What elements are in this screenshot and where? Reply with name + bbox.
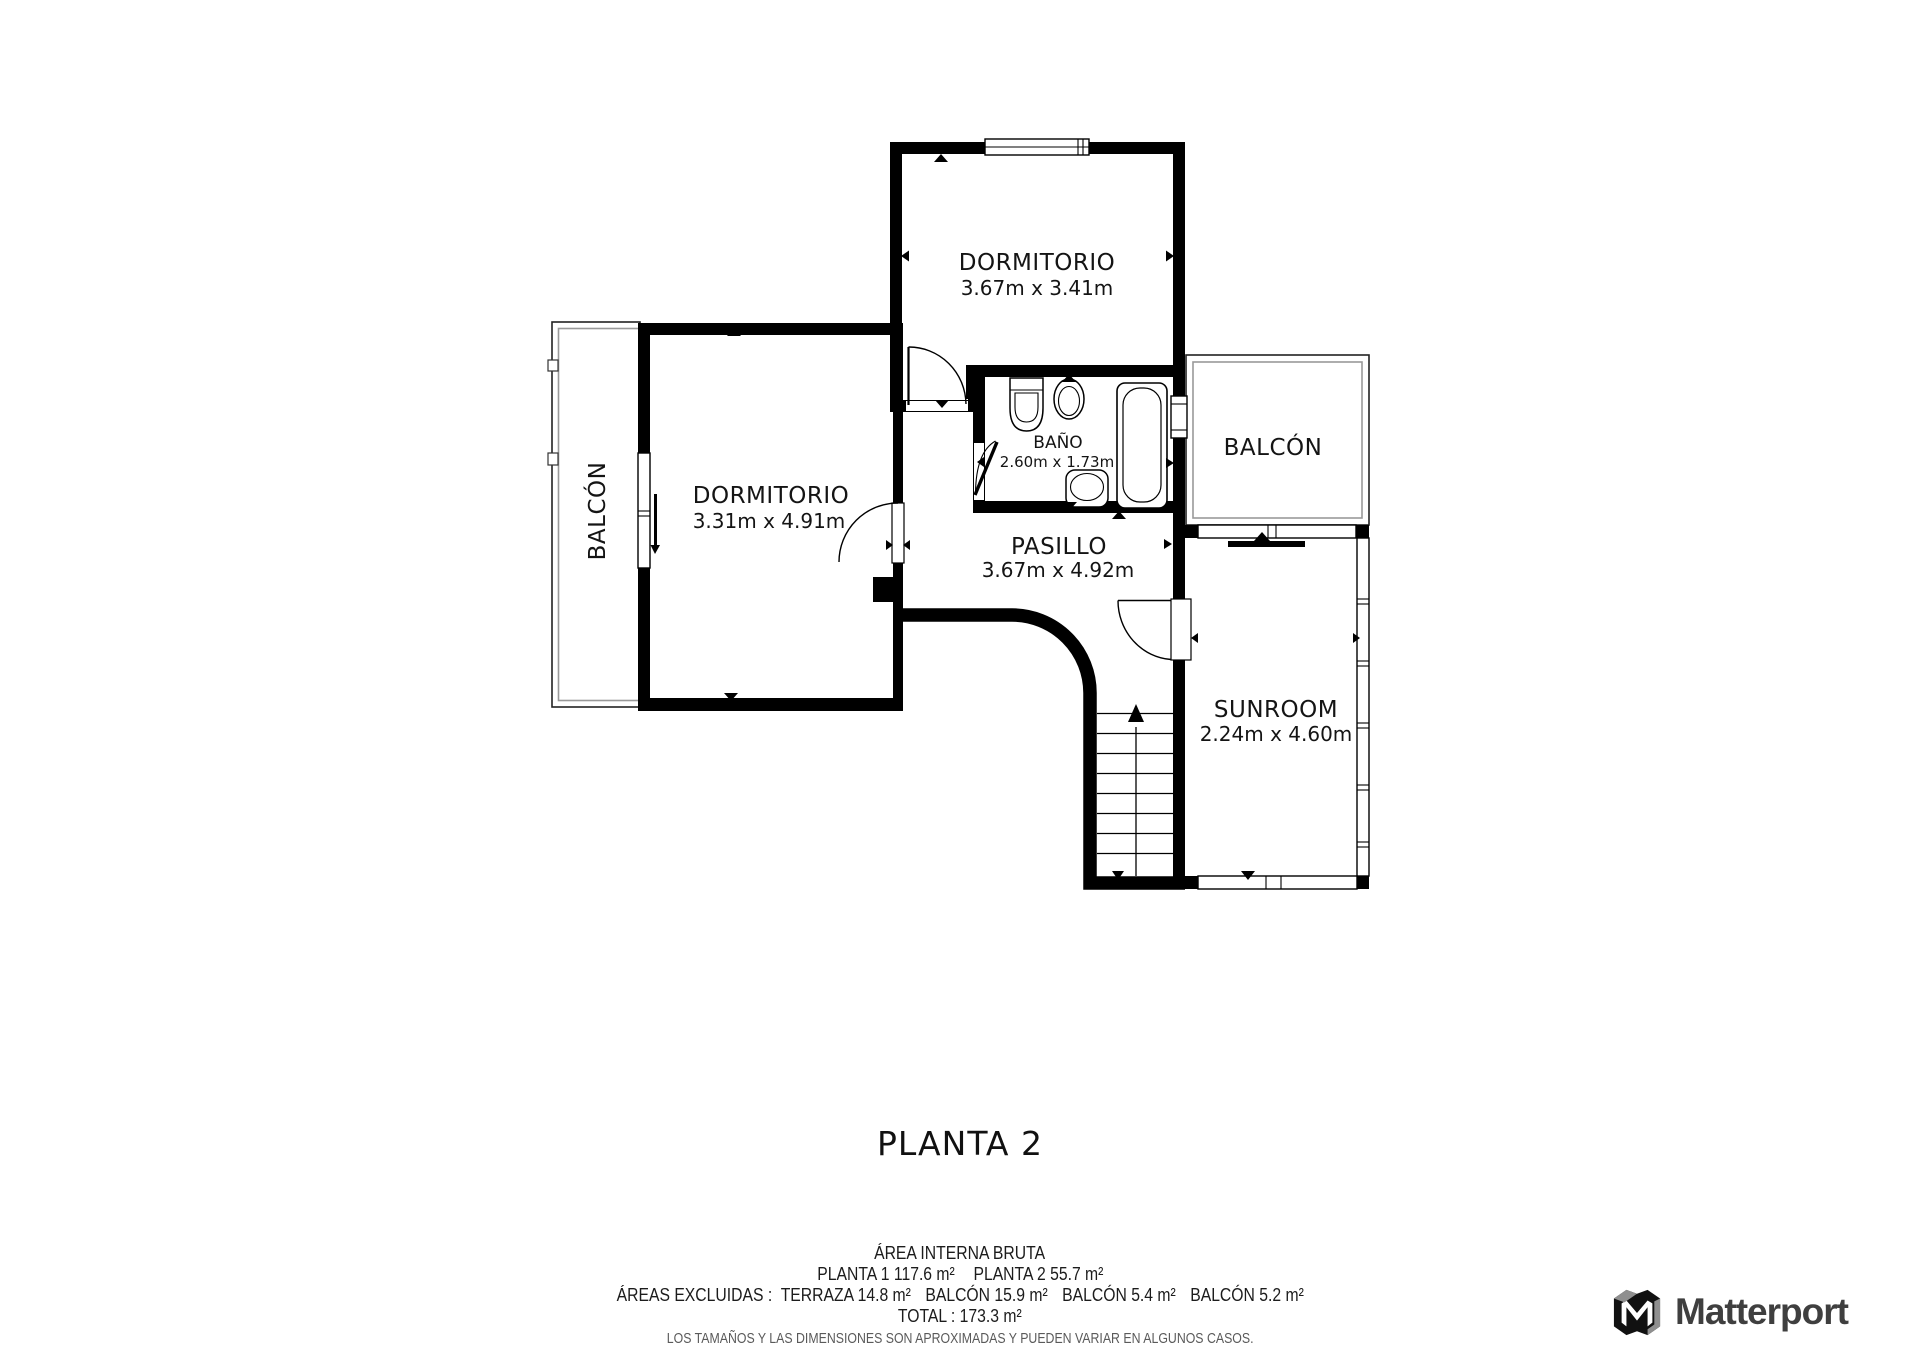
bathtub [1117,383,1167,508]
door-bathroom [972,441,997,500]
bidet [1066,470,1108,507]
excluded-area-balcon-2: BALCÓN 5.4 m² [1062,1284,1176,1305]
label-dormitorio-top: DORMITORIO [959,250,1115,276]
planta1-area: PLANTA 1 117.6 m² [817,1263,955,1284]
matterport-wordmark: Matterport [1675,1291,1848,1333]
door-sunroom [1118,599,1191,660]
excluded-area-terraza: TERRAZA 14.8 m² [780,1284,910,1305]
floorplan-page: DORMITORIO 3.67m x 3.41m DORMITORIO 3.31… [0,0,1920,1357]
total-area: TOTAL : 173.3 m² [898,1305,1022,1326]
label-sunroom: SUNROOM [1214,697,1338,723]
label-bano: BAÑO [1033,431,1082,453]
dims-sunroom: 2.24m x 4.60m [1200,722,1353,746]
sunroom-glass-wall [1357,538,1369,876]
plan-title: PLANTA 2 [0,1124,1920,1163]
dims-dormitorio-left: 3.31m x 4.91m [693,509,846,533]
dims-dormitorio-top: 3.67m x 3.41m [961,276,1114,300]
door-bedroom-top [906,347,968,413]
label-pasillo: PASILLO [1011,534,1107,560]
area-summary-title: ÁREA INTERNA BRUTA [875,1242,1046,1263]
dims-pasillo: 3.67m x 4.92m [982,558,1135,582]
label-balcon-right: BALCÓN [1224,433,1323,461]
sliding-window-bedroom-left [638,453,660,568]
excluded-area-balcon-3: BALCÓN 5.2 m² [1190,1284,1304,1305]
toilet [1054,379,1084,419]
window-bathroom [1171,396,1187,438]
excluded-areas-label: ÁREAS EXCLUIDAS : [616,1284,772,1305]
window-bedroom-top [985,139,1089,155]
dims-bano: 2.60m x 1.73m [1000,453,1114,471]
excluded-area-balcon-1: BALCÓN 15.9 m² [925,1284,1047,1305]
label-balcon-left: BALCÓN [583,462,611,561]
planta2-area: PLANTA 2 55.7 m² [973,1263,1103,1284]
stairs [1097,704,1173,876]
window-band-balcony-sunroom [1198,525,1356,538]
door-bedroom-left [839,503,904,563]
label-dormitorio-left: DORMITORIO [693,483,849,509]
sunroom-bottom-window-band [1198,876,1357,889]
disclaimer-text: LOS TAMAÑOS Y LAS DIMENSIONES SON APROXI… [667,1330,1254,1348]
sink [1010,378,1043,431]
matterport-logo-icon [1612,1286,1662,1338]
matterport-logo: Matterport [1612,1284,1848,1340]
